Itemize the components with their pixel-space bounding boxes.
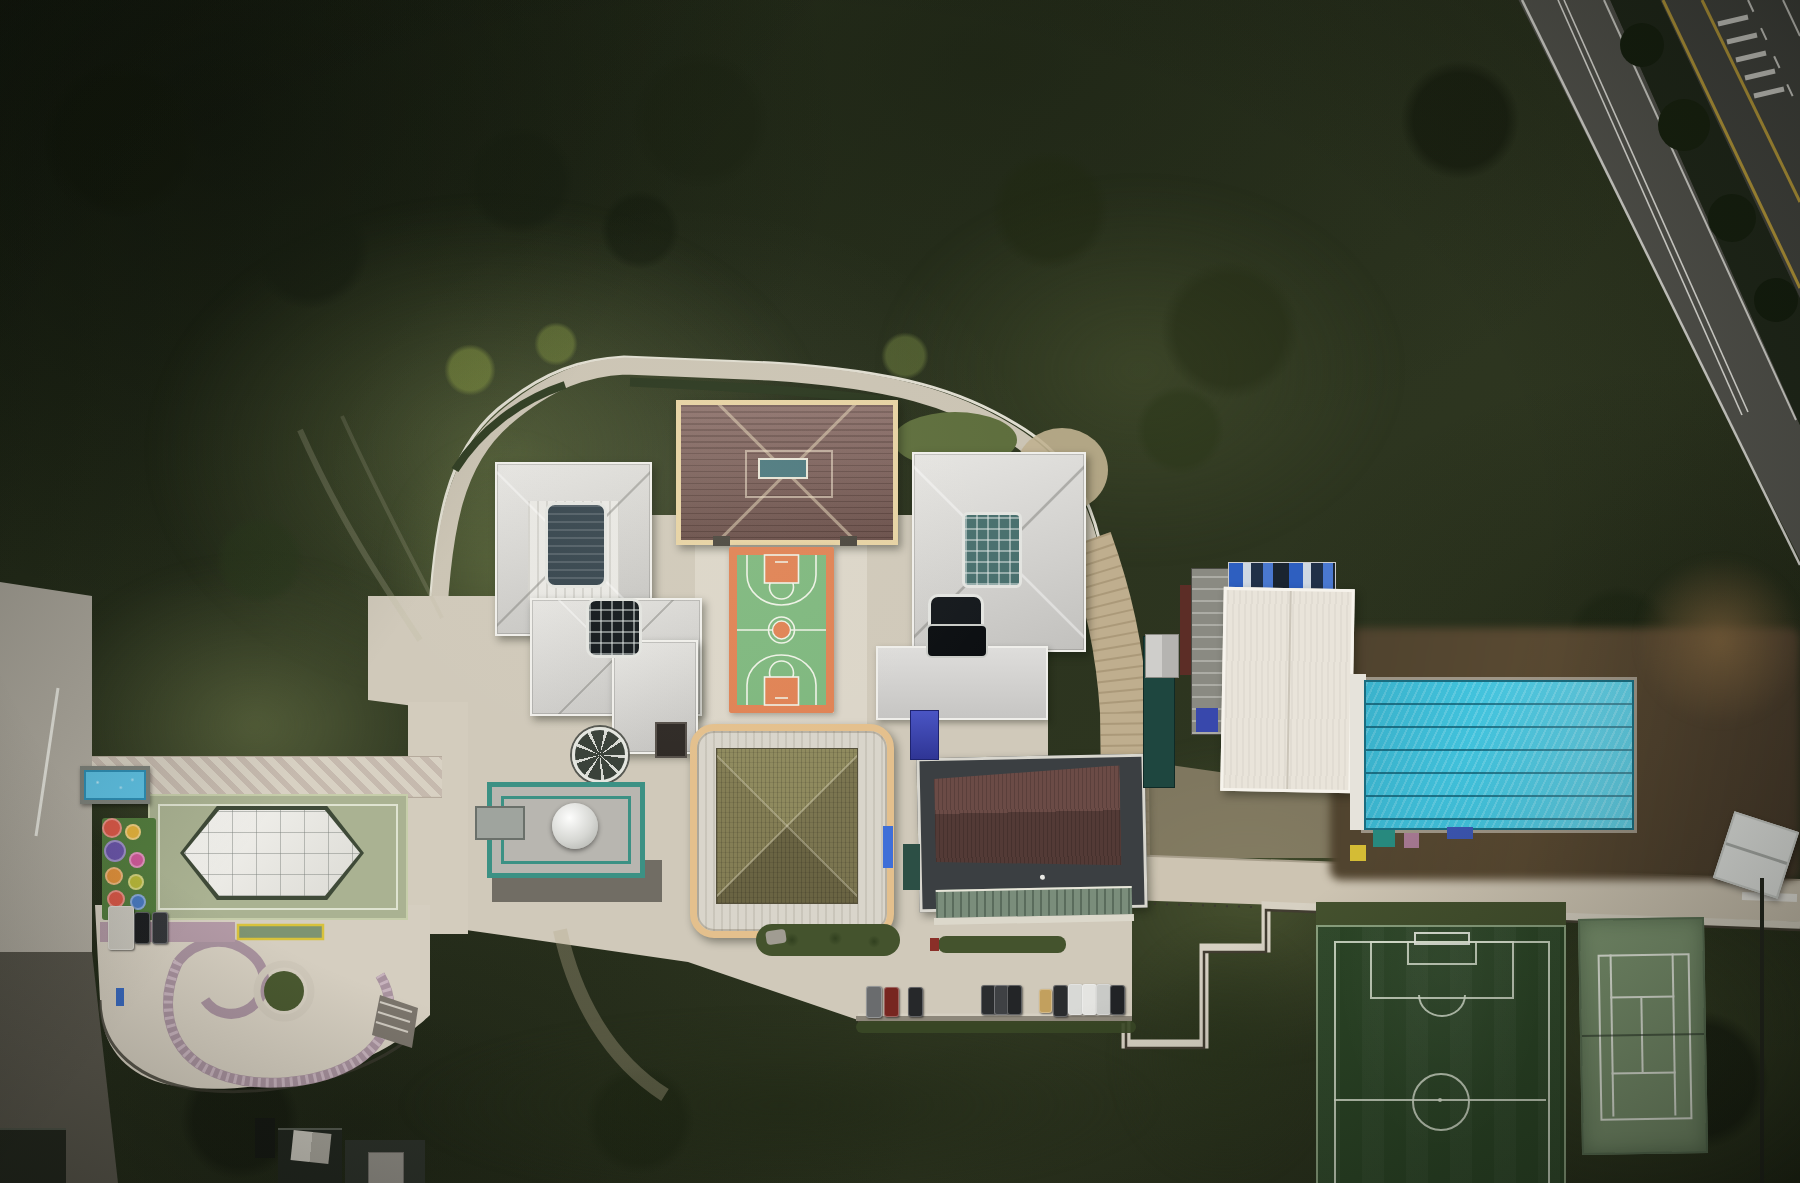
outbuilding — [0, 1128, 66, 1183]
gray-shed-roof — [368, 1152, 404, 1183]
parked-car — [908, 987, 923, 1017]
parked-car — [884, 987, 899, 1017]
white-gable-roof — [291, 1130, 332, 1164]
parked-car — [1096, 984, 1111, 1015]
parked-car — [1068, 984, 1083, 1015]
outbuilding — [255, 1118, 275, 1158]
parked-car — [1110, 985, 1125, 1015]
parked-car — [1053, 985, 1068, 1017]
parked-car — [1082, 984, 1097, 1015]
aerial-photo-campus — [0, 0, 1800, 1183]
parked-car — [866, 986, 882, 1018]
parked-car — [1007, 985, 1022, 1015]
parked-car — [1039, 989, 1052, 1013]
parking-row — [0, 0, 1800, 1183]
